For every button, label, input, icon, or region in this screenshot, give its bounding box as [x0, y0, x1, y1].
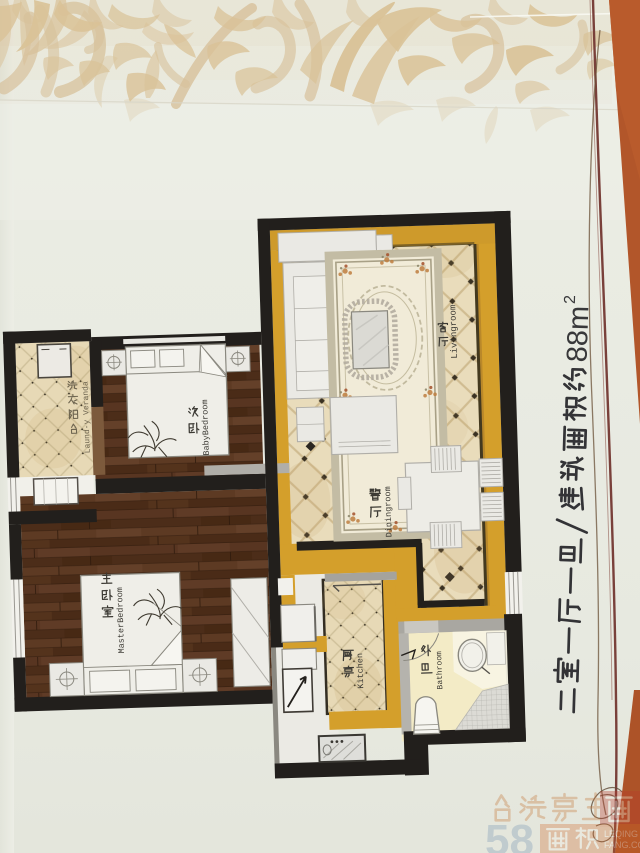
svg-text:Diningroom: Diningroom: [383, 486, 395, 537]
svg-text:Bathroom: Bathroom: [435, 651, 445, 690]
svg-text:BabyBedroom: BabyBedroom: [200, 399, 212, 455]
svg-text:FANG.COM: FANG.COM: [604, 840, 640, 850]
svg-text:LEQING: LEQING: [604, 829, 638, 839]
svg-text:2: 2: [562, 295, 579, 305]
svg-text:88m: 88m: [562, 305, 596, 362]
svg-text:58: 58: [485, 816, 534, 853]
svg-text:Livingroom: Livingroom: [448, 305, 460, 359]
svg-text:MasterBedroom: MasterBedroom: [115, 587, 127, 654]
svg-text:Kitchen: Kitchen: [355, 653, 366, 689]
